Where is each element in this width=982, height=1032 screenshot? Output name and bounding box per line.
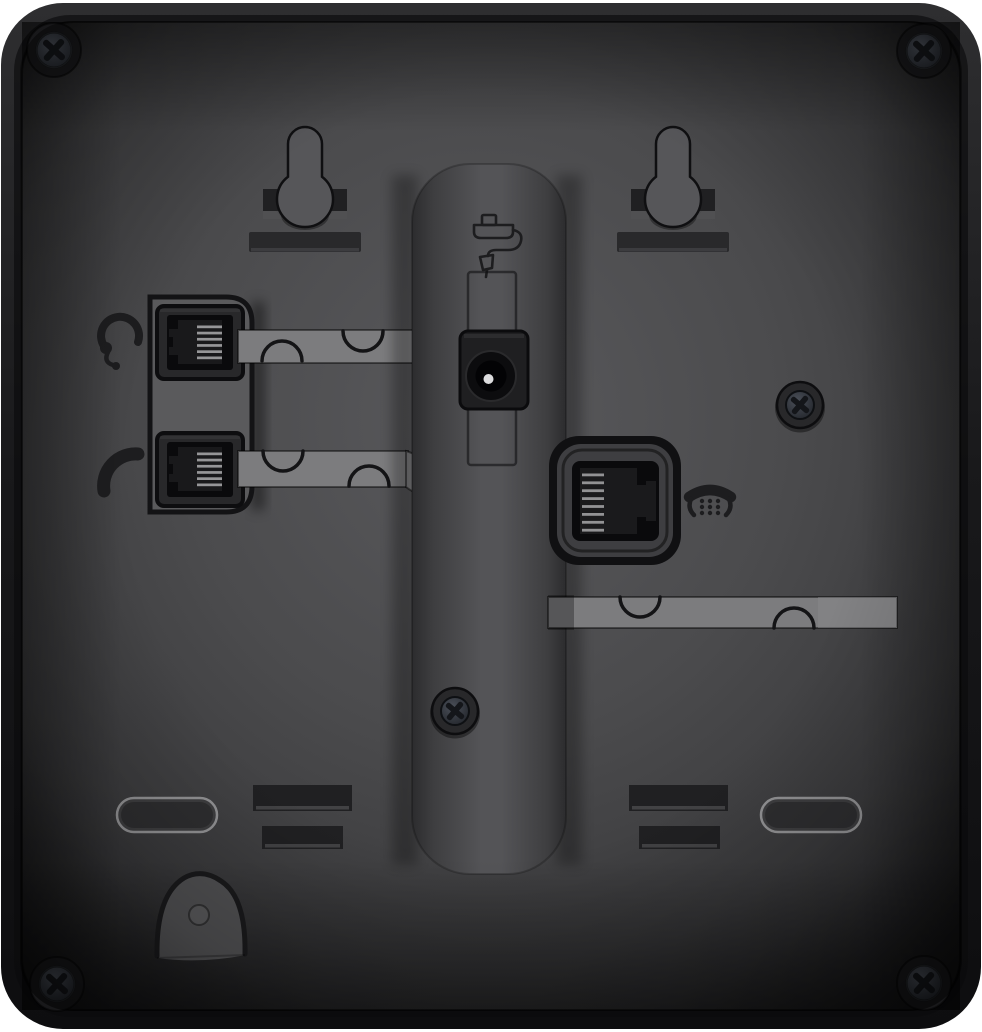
- photo-stage: [0, 0, 982, 1032]
- rear-panel-photo: [0, 0, 982, 1032]
- vignette-overlay: [20, 21, 962, 1011]
